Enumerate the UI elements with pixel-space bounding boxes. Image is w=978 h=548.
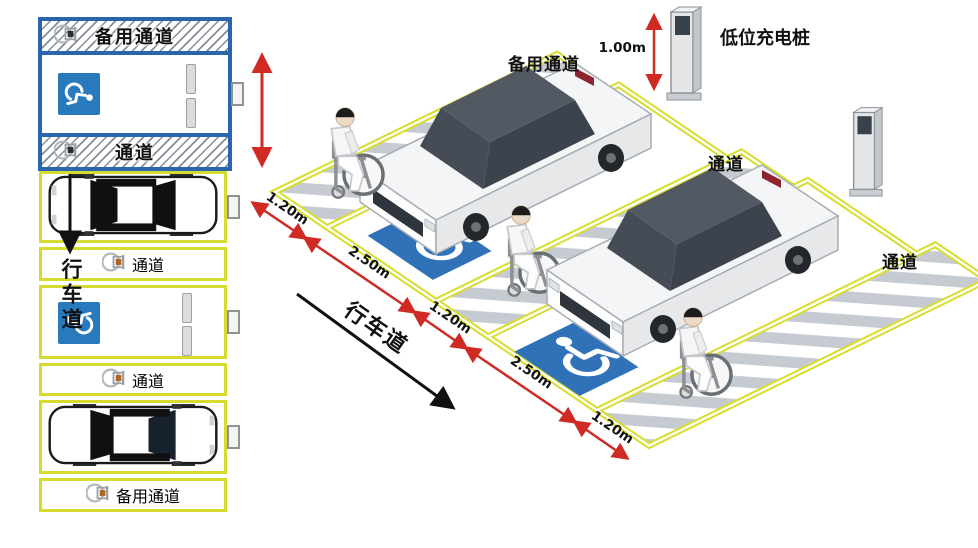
iso-aisle-label-1: 通道 <box>708 154 744 175</box>
charging-pile-1 <box>667 7 701 100</box>
iso-reserve-aisle-label: 备用通道 <box>507 54 580 75</box>
charger-height-dim: 1.00m <box>599 40 646 56</box>
accessible-parking-diagram: 备用通道 通道 <box>0 0 978 548</box>
charger-label: 低位充电桩 <box>719 27 810 49</box>
iso-aisle-label-2: 通道 <box>882 252 918 273</box>
charging-pile-2 <box>850 108 882 196</box>
iso-scene: 1.00m 低位充电桩 备用通道 通道 通道 1.20m 2.50m 1.20m… <box>0 0 978 548</box>
